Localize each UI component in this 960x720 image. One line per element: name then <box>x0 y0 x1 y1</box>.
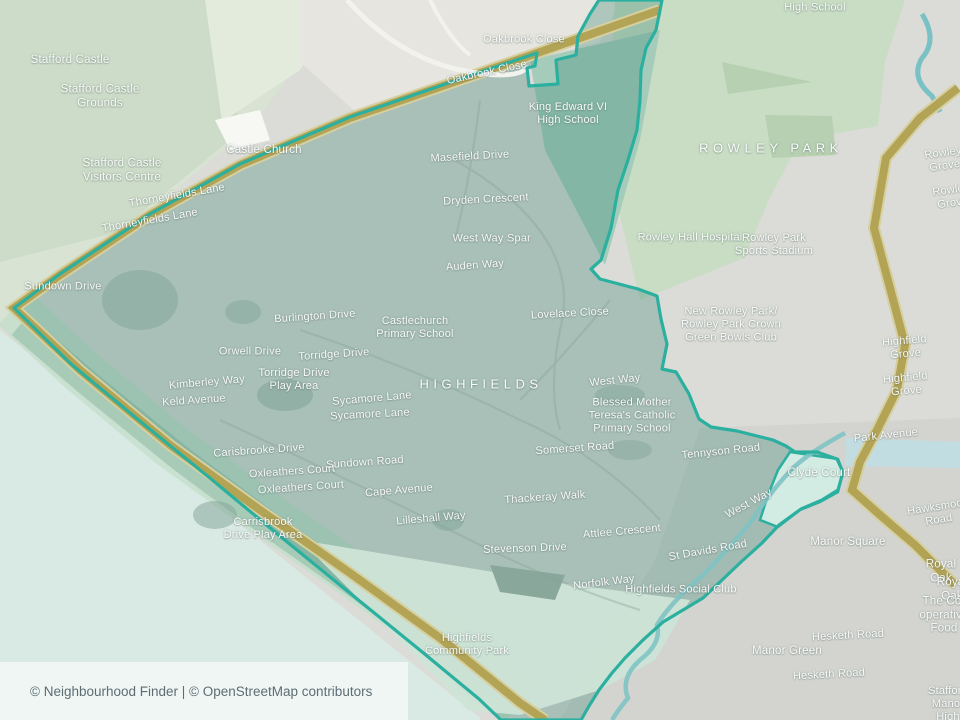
map-label-cape-avenue: Cape Avenue <box>365 482 434 501</box>
map-label-thorneyfields-lane-1: Thorneyfields Lane <box>128 181 226 211</box>
attribution-bar: © Neighbourhood Finder | © OpenStreetMap… <box>0 662 408 720</box>
attribution-text: © Neighbourhood Finder | © OpenStreetMap… <box>30 684 372 699</box>
map-label-rowley-grove-2: Rowley Grove <box>932 182 960 213</box>
map-label-stafford-castle: Stafford Castle <box>31 54 110 68</box>
map-label-highfields-social-club: Highfields Social Club <box>625 584 736 597</box>
map-label-hesketh-road-1: Hesketh Road <box>812 628 885 645</box>
map-label-keld-avenue: Keld Avenue <box>162 392 227 409</box>
map-label-rowley-grove-1: Rowley Grove <box>924 145 960 176</box>
map-label-masefield-drive: Masefield Drive <box>430 148 509 165</box>
map-label-royal-oak-2: Royal Oak <box>937 576 960 603</box>
label-layer: Stafford CastleStafford Castle GroundsOa… <box>0 0 960 720</box>
map-label-torridge-drive-play-area: Torridge Drive Play Area <box>258 367 329 393</box>
map-label-stafford-manor-high-school: Stafford Manor High School <box>928 685 960 720</box>
map-label-sycamore-lane-1: Sycamore Lane <box>332 389 412 409</box>
map-label-sycamore-lane-2: Sycamore Lane <box>330 406 410 423</box>
map-label-oxleathers-court-1: Oxleathers Court <box>248 463 335 482</box>
map-label-auden-way: Auden Way <box>445 257 504 274</box>
map-label-st-davids-road: St Davids Road <box>668 538 748 565</box>
map-label-manor-square: Manor Square <box>810 536 885 550</box>
map-label-sundown-drive: Sundown Drive <box>24 281 101 294</box>
map-label-west-way-3: West Way <box>723 486 774 521</box>
map-label-lovelace-close: Lovelace Close <box>531 305 610 322</box>
map-label-carrisbrook-drive-play-area: Carrisbrook Drive Play Area <box>224 516 303 542</box>
map-label-west-way-2: West Way <box>589 372 641 390</box>
map-label-rowley-hall-hospital: Rowley Hall Hospital <box>638 232 743 245</box>
map-label-oxleathers-court-2: Oxleathers Court <box>257 479 344 498</box>
map-label-torridge-drive: Torridge Drive <box>298 346 370 364</box>
map-label-spar: Spar <box>507 233 531 246</box>
map-label-carisbrooke-drive: Carisbrooke Drive <box>213 441 305 460</box>
map-label-highfields-community-park: Highfields Community Park <box>425 632 509 658</box>
map-label-blessed-mother-teresa-school: Blessed Mother Teresa's Catholic Primary… <box>589 397 676 436</box>
map-label-stafford-castle-visitors-centre: Stafford Castle Visitors Centre <box>83 157 162 184</box>
map-label-cooperative-food: The Co- operative Food <box>919 596 960 637</box>
map-label-rowley-park-bowls-club: New Rowley Park/ Rowley Park Crown Green… <box>681 306 781 345</box>
map-label-highfield-grove-2: Highfield Grove <box>878 370 934 401</box>
map-label-oakbrook-close-1: Oakbrook Close <box>483 34 565 47</box>
map-label-clyde-court: Clyde Court <box>788 467 851 481</box>
map-label-attlee-crescent: Attlee Crescent <box>582 522 661 542</box>
map-label-tennyson-road: Tennyson Road <box>681 441 761 462</box>
map-label-dryden-crescent: Dryden Crescent <box>443 191 529 208</box>
map-label-rowley-park-area: ROWLEY PARK <box>699 140 843 155</box>
map-label-kimberley-way: Kimberley Way <box>169 373 246 393</box>
map-label-stevenson-drive: Stevenson Drive <box>483 541 567 557</box>
map-label-highfields-area: HIGHFIELDS <box>419 376 542 391</box>
map-label-manor-green: Manor Green <box>752 645 822 659</box>
map-label-oakbrook-close-2: Oakbrook Close <box>446 58 529 88</box>
map-label-somerset-road: Somerset Road <box>535 440 615 458</box>
map-label-orwell-drive: Orwell Drive <box>219 346 281 359</box>
map-label-hawksmoor-road: Hawksmoor Road <box>906 497 960 532</box>
map-label-burlington-drive: Burlington Drive <box>274 308 356 327</box>
map-label-rowley-park-sports-stadium: Rowley Park Sports Stadium <box>735 232 813 258</box>
map-viewport[interactable]: Stafford CastleStafford Castle GroundsOa… <box>0 0 960 720</box>
map-label-thackeray-walk: Thackeray Walk <box>504 489 586 508</box>
map-label-lilleshall-way: Lilleshall Way <box>396 510 467 529</box>
map-label-king-edward-vi-high-school: King Edward VI High School <box>529 101 608 127</box>
map-label-highfield-grove-1: Highfield Grove <box>876 333 933 364</box>
map-label-high-school: High School <box>784 2 846 15</box>
map-label-royal-oak-1: Royal Oak <box>926 558 956 585</box>
map-label-norfolk-way: Norfolk Way <box>573 573 636 593</box>
map-label-west-way-1: West Way <box>452 233 503 246</box>
map-label-thorneyfields-lane-2: Thorneyfields Lane <box>101 206 199 236</box>
map-label-stafford-castle-grounds: Stafford Castle Grounds <box>61 83 140 110</box>
map-label-sundown-road: Sundown Road <box>326 454 404 472</box>
map-label-castlechurch-primary-school: Castlechurch Primary School <box>376 315 453 341</box>
map-label-hesketh-road-2: Hesketh Road <box>793 667 866 684</box>
map-label-park-avenue: Park Avenue <box>853 426 918 446</box>
map-label-castle-church: Castle Church <box>226 144 301 158</box>
